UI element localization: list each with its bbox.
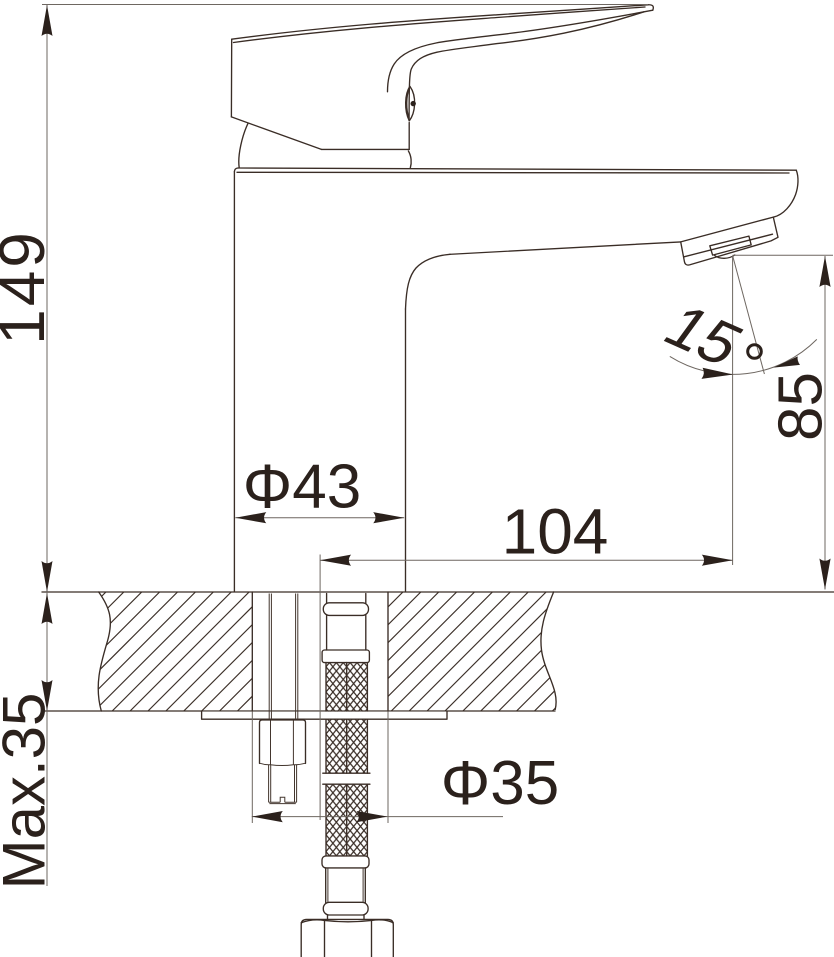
svg-text:Max.35: Max.35 [0, 693, 58, 890]
svg-text:149: 149 [0, 229, 58, 345]
svg-text:Φ43: Φ43 [243, 453, 361, 522]
svg-text:Φ35: Φ35 [441, 749, 559, 818]
svg-text:85: 85 [767, 372, 834, 441]
svg-text:104: 104 [502, 496, 609, 568]
